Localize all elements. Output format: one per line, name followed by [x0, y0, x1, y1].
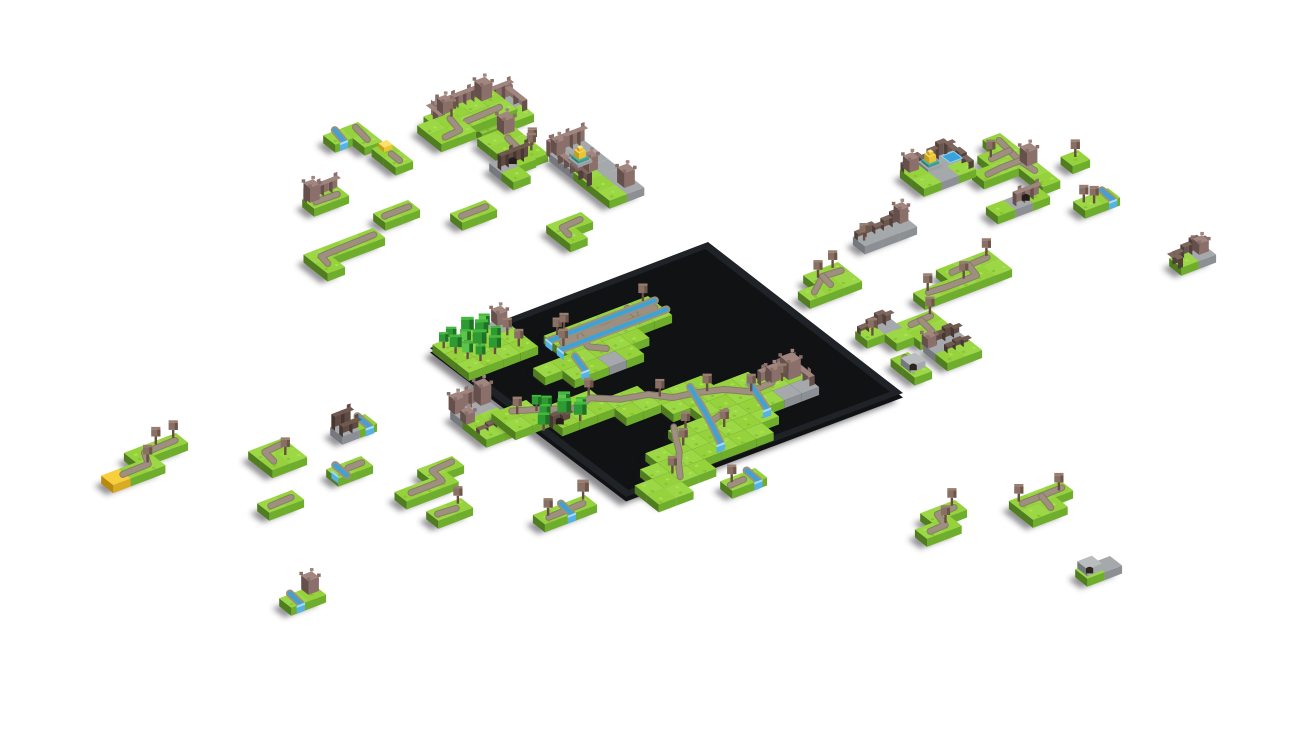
tile-t-piece[interactable]	[1002, 473, 1073, 530]
wall-road-long[interactable]	[846, 199, 917, 257]
castle-road-gold-statue[interactable]	[542, 122, 644, 211]
tile-pond-trees[interactable]	[1066, 185, 1120, 221]
tile-strip-c[interactable]	[250, 490, 304, 523]
game-viewport	[0, 0, 1315, 731]
tile-strip-a[interactable]	[366, 200, 420, 233]
tile-river-path[interactable]	[319, 456, 373, 489]
tile-river-tree[interactable]	[713, 465, 767, 501]
tile-cross-tower[interactable]	[965, 133, 1060, 197]
tower-river-tile[interactable]	[272, 568, 326, 618]
tile-l-small[interactable]	[539, 212, 593, 254]
castle-ruin-gold-statue[interactable]	[893, 138, 976, 199]
wall-river-tile[interactable]	[323, 403, 377, 446]
tile-gold-corner-long[interactable]	[94, 420, 188, 495]
tile-single-tree[interactable]	[1054, 139, 1091, 176]
tile-river-strip[interactable]	[526, 480, 597, 535]
tile-y-paths[interactable]	[791, 250, 862, 311]
tile-strip-b[interactable]	[443, 200, 497, 233]
lone-castle-ruin[interactable]	[1162, 232, 1216, 278]
stone-gate-road[interactable]	[1068, 556, 1122, 589]
tile-wall-small[interactable]	[295, 172, 349, 219]
tile-big-l[interactable]	[906, 238, 1012, 312]
scene-svg	[0, 0, 1315, 731]
wall-ruin-tree[interactable]	[848, 310, 914, 354]
tile-l-long-nw[interactable]	[297, 228, 386, 284]
tile-s-piece[interactable]	[908, 488, 967, 549]
tile-square-tree[interactable]	[241, 437, 307, 480]
